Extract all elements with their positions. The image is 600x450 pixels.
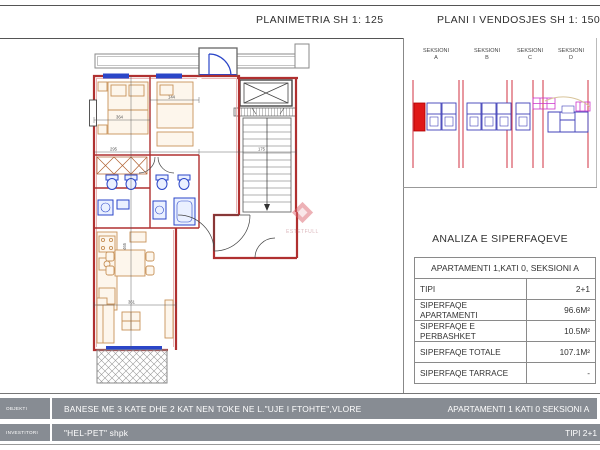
tv-unit-icon bbox=[165, 300, 173, 338]
table-header-apartment: APARTAMENTI 1,KATI 0, SEKSIONI A bbox=[415, 258, 596, 279]
apartment-title-bar: APARTAMENTI 1 KATI 0 SEKSIONI A bbox=[440, 398, 597, 419]
tipi-bar: TIPI 2+1 bbox=[440, 424, 600, 441]
analysis-title: ANALIZA E SIPERFAQEVE bbox=[403, 233, 597, 245]
objekti-label-bar: OBJEKTI bbox=[0, 398, 50, 419]
row-label: SIPERFAQE TOTALE bbox=[415, 342, 527, 363]
table-row: TIPI 2+1 bbox=[415, 279, 596, 300]
siteplan-bottom-line bbox=[403, 187, 597, 188]
stairs-icon bbox=[243, 118, 291, 212]
svg-text:295: 295 bbox=[110, 147, 118, 152]
highlighted-unit bbox=[414, 103, 425, 131]
svg-text:465: 465 bbox=[122, 242, 127, 250]
right-sheet-title: PLANI I VENDOSJES SH 1: 1500 bbox=[437, 14, 600, 26]
balcony-terrace bbox=[97, 350, 167, 383]
washer-icon bbox=[98, 200, 166, 219]
row-value: 107.1M² bbox=[527, 342, 596, 363]
floor-plan-drawing: 364 144 175 295 465 361 ESTETFULL bbox=[0, 38, 403, 393]
svg-text:364: 364 bbox=[116, 115, 124, 120]
svg-text:ESTETFULL: ESTETFULL bbox=[286, 229, 319, 235]
site-section-d bbox=[548, 106, 588, 132]
svg-text:361: 361 bbox=[128, 300, 136, 305]
site-units bbox=[427, 103, 530, 130]
sheet-bottom-line bbox=[0, 444, 600, 445]
content-bottom-line bbox=[0, 393, 600, 394]
sofa-icon bbox=[97, 298, 114, 343]
row-label: SIPERFAQE E PERBASHKET bbox=[415, 321, 527, 342]
objekti-value-bar: BANESE ME 3 KATE DHE 2 KAT NEN TOKE NE L… bbox=[52, 398, 444, 419]
entrance-vestibule bbox=[199, 48, 237, 77]
site-magenta-blocks bbox=[533, 98, 590, 111]
row-label: SIPERFAQE TARRACE bbox=[415, 363, 527, 384]
left-sheet-title: PLANIMETRIA SH 1: 125 bbox=[256, 14, 383, 26]
investitori-label-bar: INVESTITORI bbox=[0, 424, 50, 441]
investitori-value-bar: "HEL-PET" shpk bbox=[52, 424, 444, 441]
table-row: SIPERFAQE E PERBASHKET 10.5M² bbox=[415, 321, 596, 342]
elevator-icon bbox=[234, 80, 296, 116]
table-row: SIPERFAQE TARRACE - bbox=[415, 363, 596, 384]
svg-text:144: 144 bbox=[168, 95, 176, 100]
site-terrain-line bbox=[545, 97, 590, 107]
drawing-sheet: PLANIMETRIA SH 1: 125 PLANI I VENDOSJES … bbox=[0, 0, 600, 450]
row-label: SIPERFAQE APARTAMENTI bbox=[415, 300, 527, 321]
bed-icons bbox=[98, 82, 193, 146]
bathtub-icon bbox=[174, 198, 195, 225]
row-value: - bbox=[527, 363, 596, 384]
table-row: SIPERFAQE APARTAMENTI 96.6M² bbox=[415, 300, 596, 321]
left-wall-window-icon bbox=[90, 100, 97, 126]
site-plan-drawing bbox=[403, 38, 597, 187]
area-analysis-table: APARTAMENTI 1,KATI 0, SEKSIONI A TIPI 2+… bbox=[414, 257, 596, 384]
svg-text:175: 175 bbox=[258, 147, 266, 152]
table-row: SIPERFAQE TOTALE 107.1M² bbox=[415, 342, 596, 363]
closet-icon bbox=[97, 157, 147, 174]
top-border-line bbox=[0, 5, 600, 6]
row-value: 96.6M² bbox=[527, 300, 596, 321]
row-value: 10.5M² bbox=[527, 321, 596, 342]
row-label: TIPI bbox=[415, 279, 527, 300]
row-value: 2+1 bbox=[527, 279, 596, 300]
